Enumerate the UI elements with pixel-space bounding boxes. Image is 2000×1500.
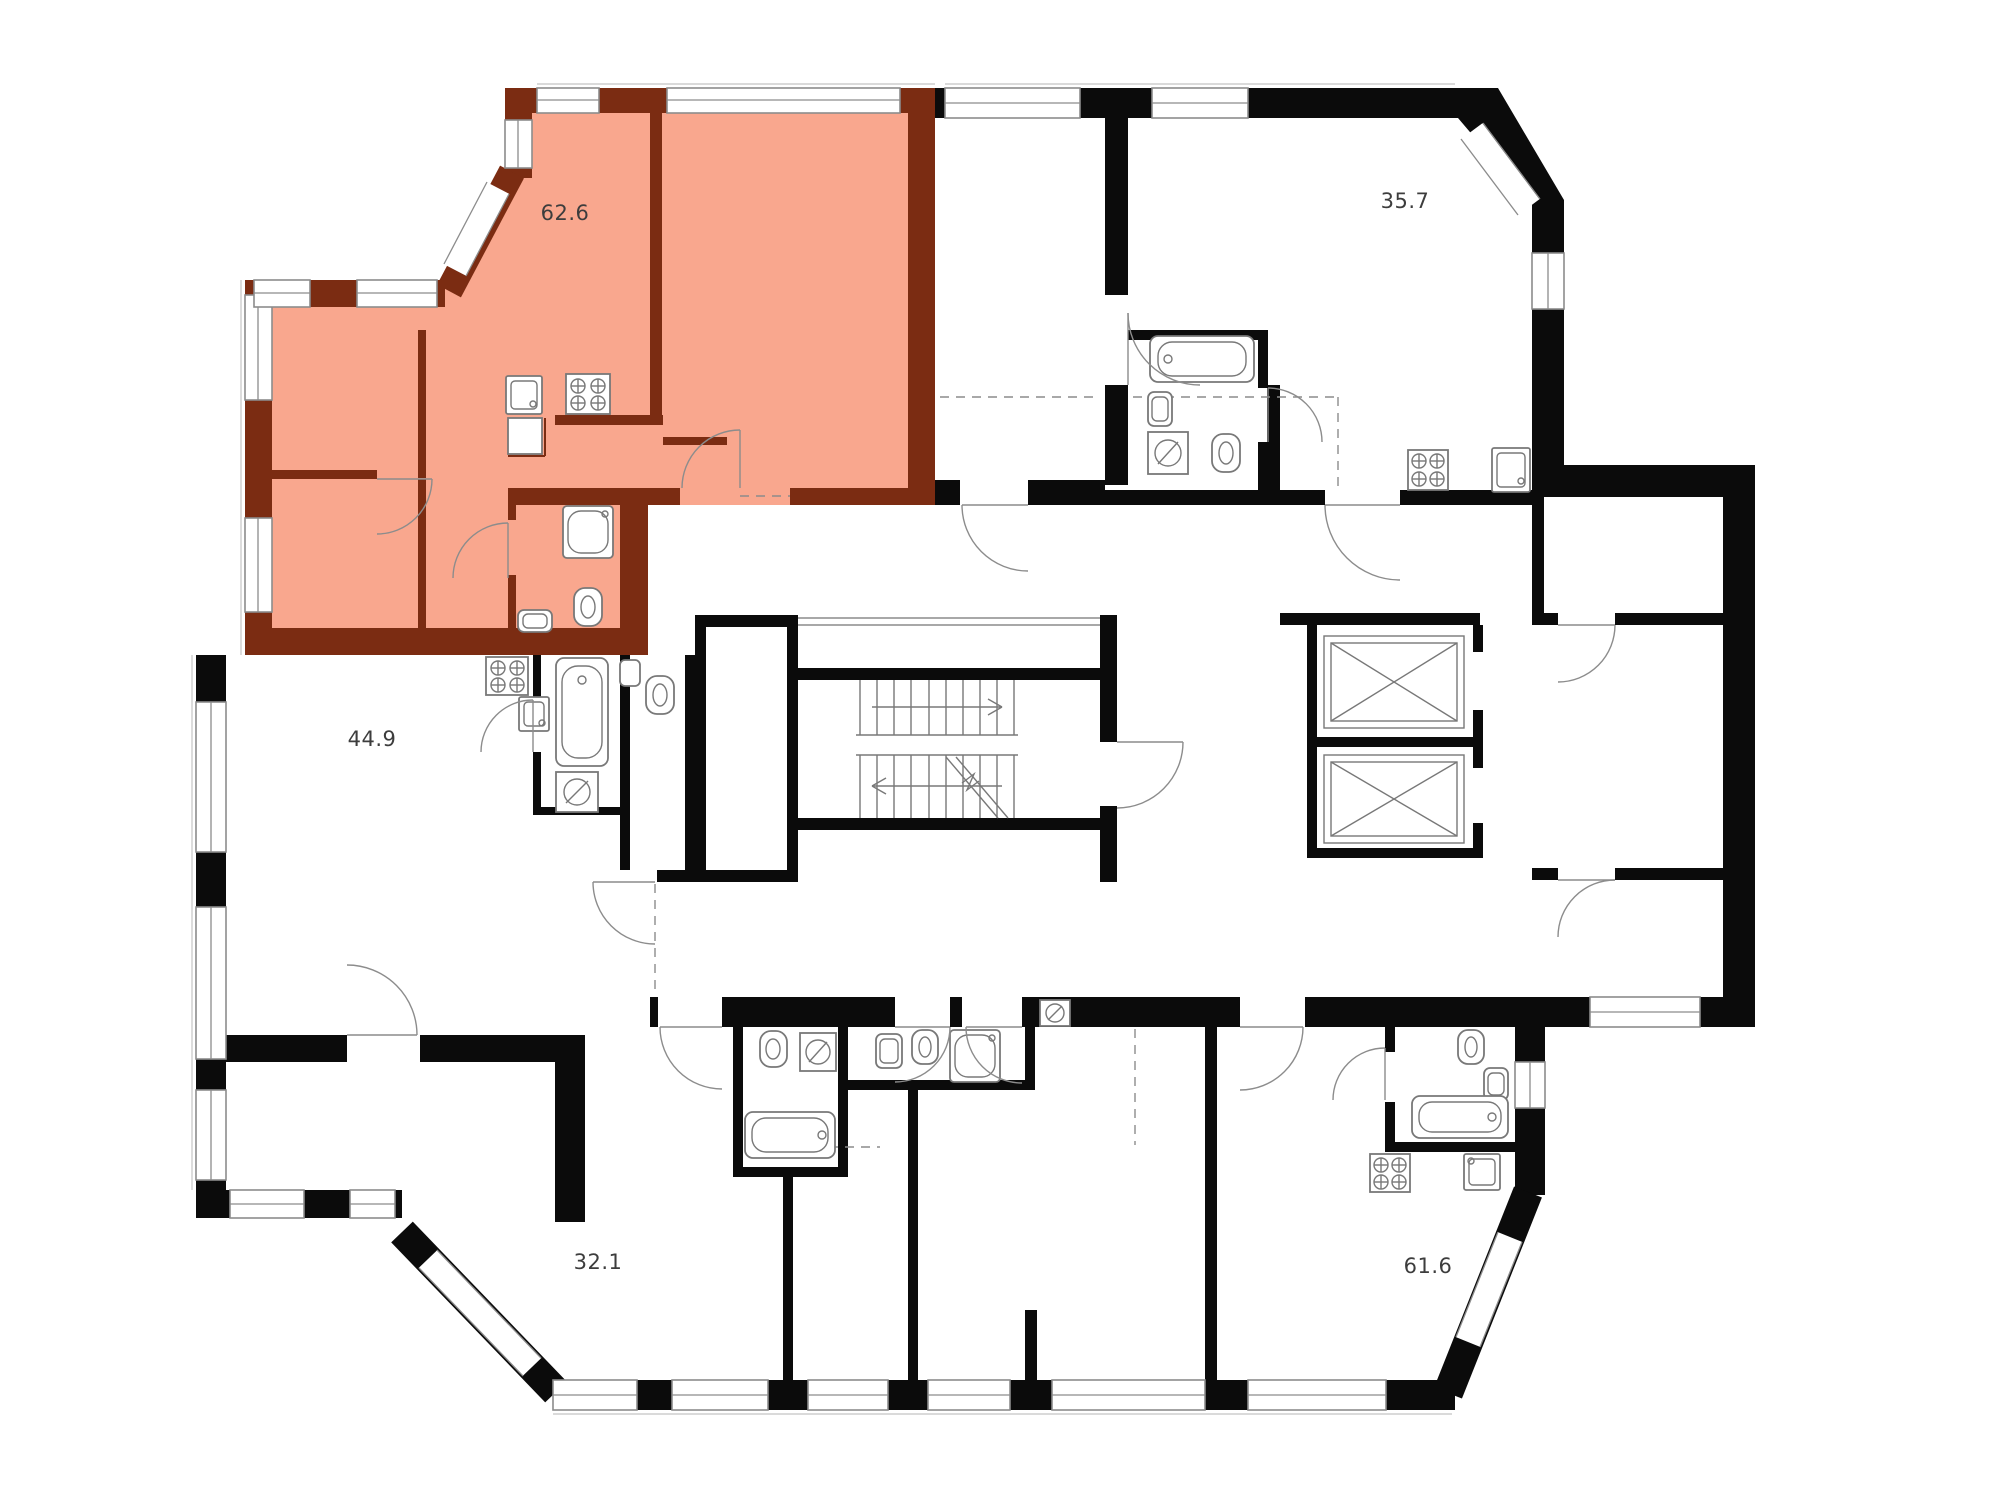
toilet-icon (574, 588, 602, 626)
toilet-icon (646, 676, 674, 714)
stove-icon (566, 374, 610, 414)
unit-area-label-35-7: 35.7 (1381, 189, 1430, 213)
counter-icon (508, 418, 542, 454)
washing-machine-icon (1040, 1000, 1070, 1026)
elevator-icon (1324, 636, 1464, 728)
toilet-icon (912, 1030, 938, 1064)
unit-62-6-region[interactable] (245, 88, 935, 655)
unit-area-label-44-9: 44.9 (348, 727, 397, 751)
unit-35-7-region[interactable] (1128, 118, 1532, 490)
staircase-icon (798, 618, 1100, 818)
floor-plan-svg: 62.6 35.7 44.9 32.1 61.6 (0, 0, 2000, 1500)
unit-44-9-region[interactable] (226, 655, 650, 1035)
floor-plan-page: 62.6 35.7 44.9 32.1 61.6 (0, 0, 2000, 1500)
unit-area-label-62-6: 62.6 (541, 201, 590, 225)
unit-32-1-region[interactable] (585, 1062, 783, 1380)
unit-area-label-32-1: 32.1 (574, 1250, 623, 1274)
unit-area-label-61-6: 61.6 (1404, 1254, 1453, 1278)
toilet-icon (760, 1031, 787, 1067)
elevator-icon (1324, 755, 1464, 843)
bathroom-sink-icon (876, 1034, 902, 1068)
shower-icon (563, 506, 613, 558)
bathroom-sink-icon (518, 610, 552, 632)
washing-machine-icon (800, 1033, 836, 1071)
kitchen-sink-icon (506, 376, 542, 414)
unit-61-6-region[interactable] (1217, 1027, 1515, 1380)
